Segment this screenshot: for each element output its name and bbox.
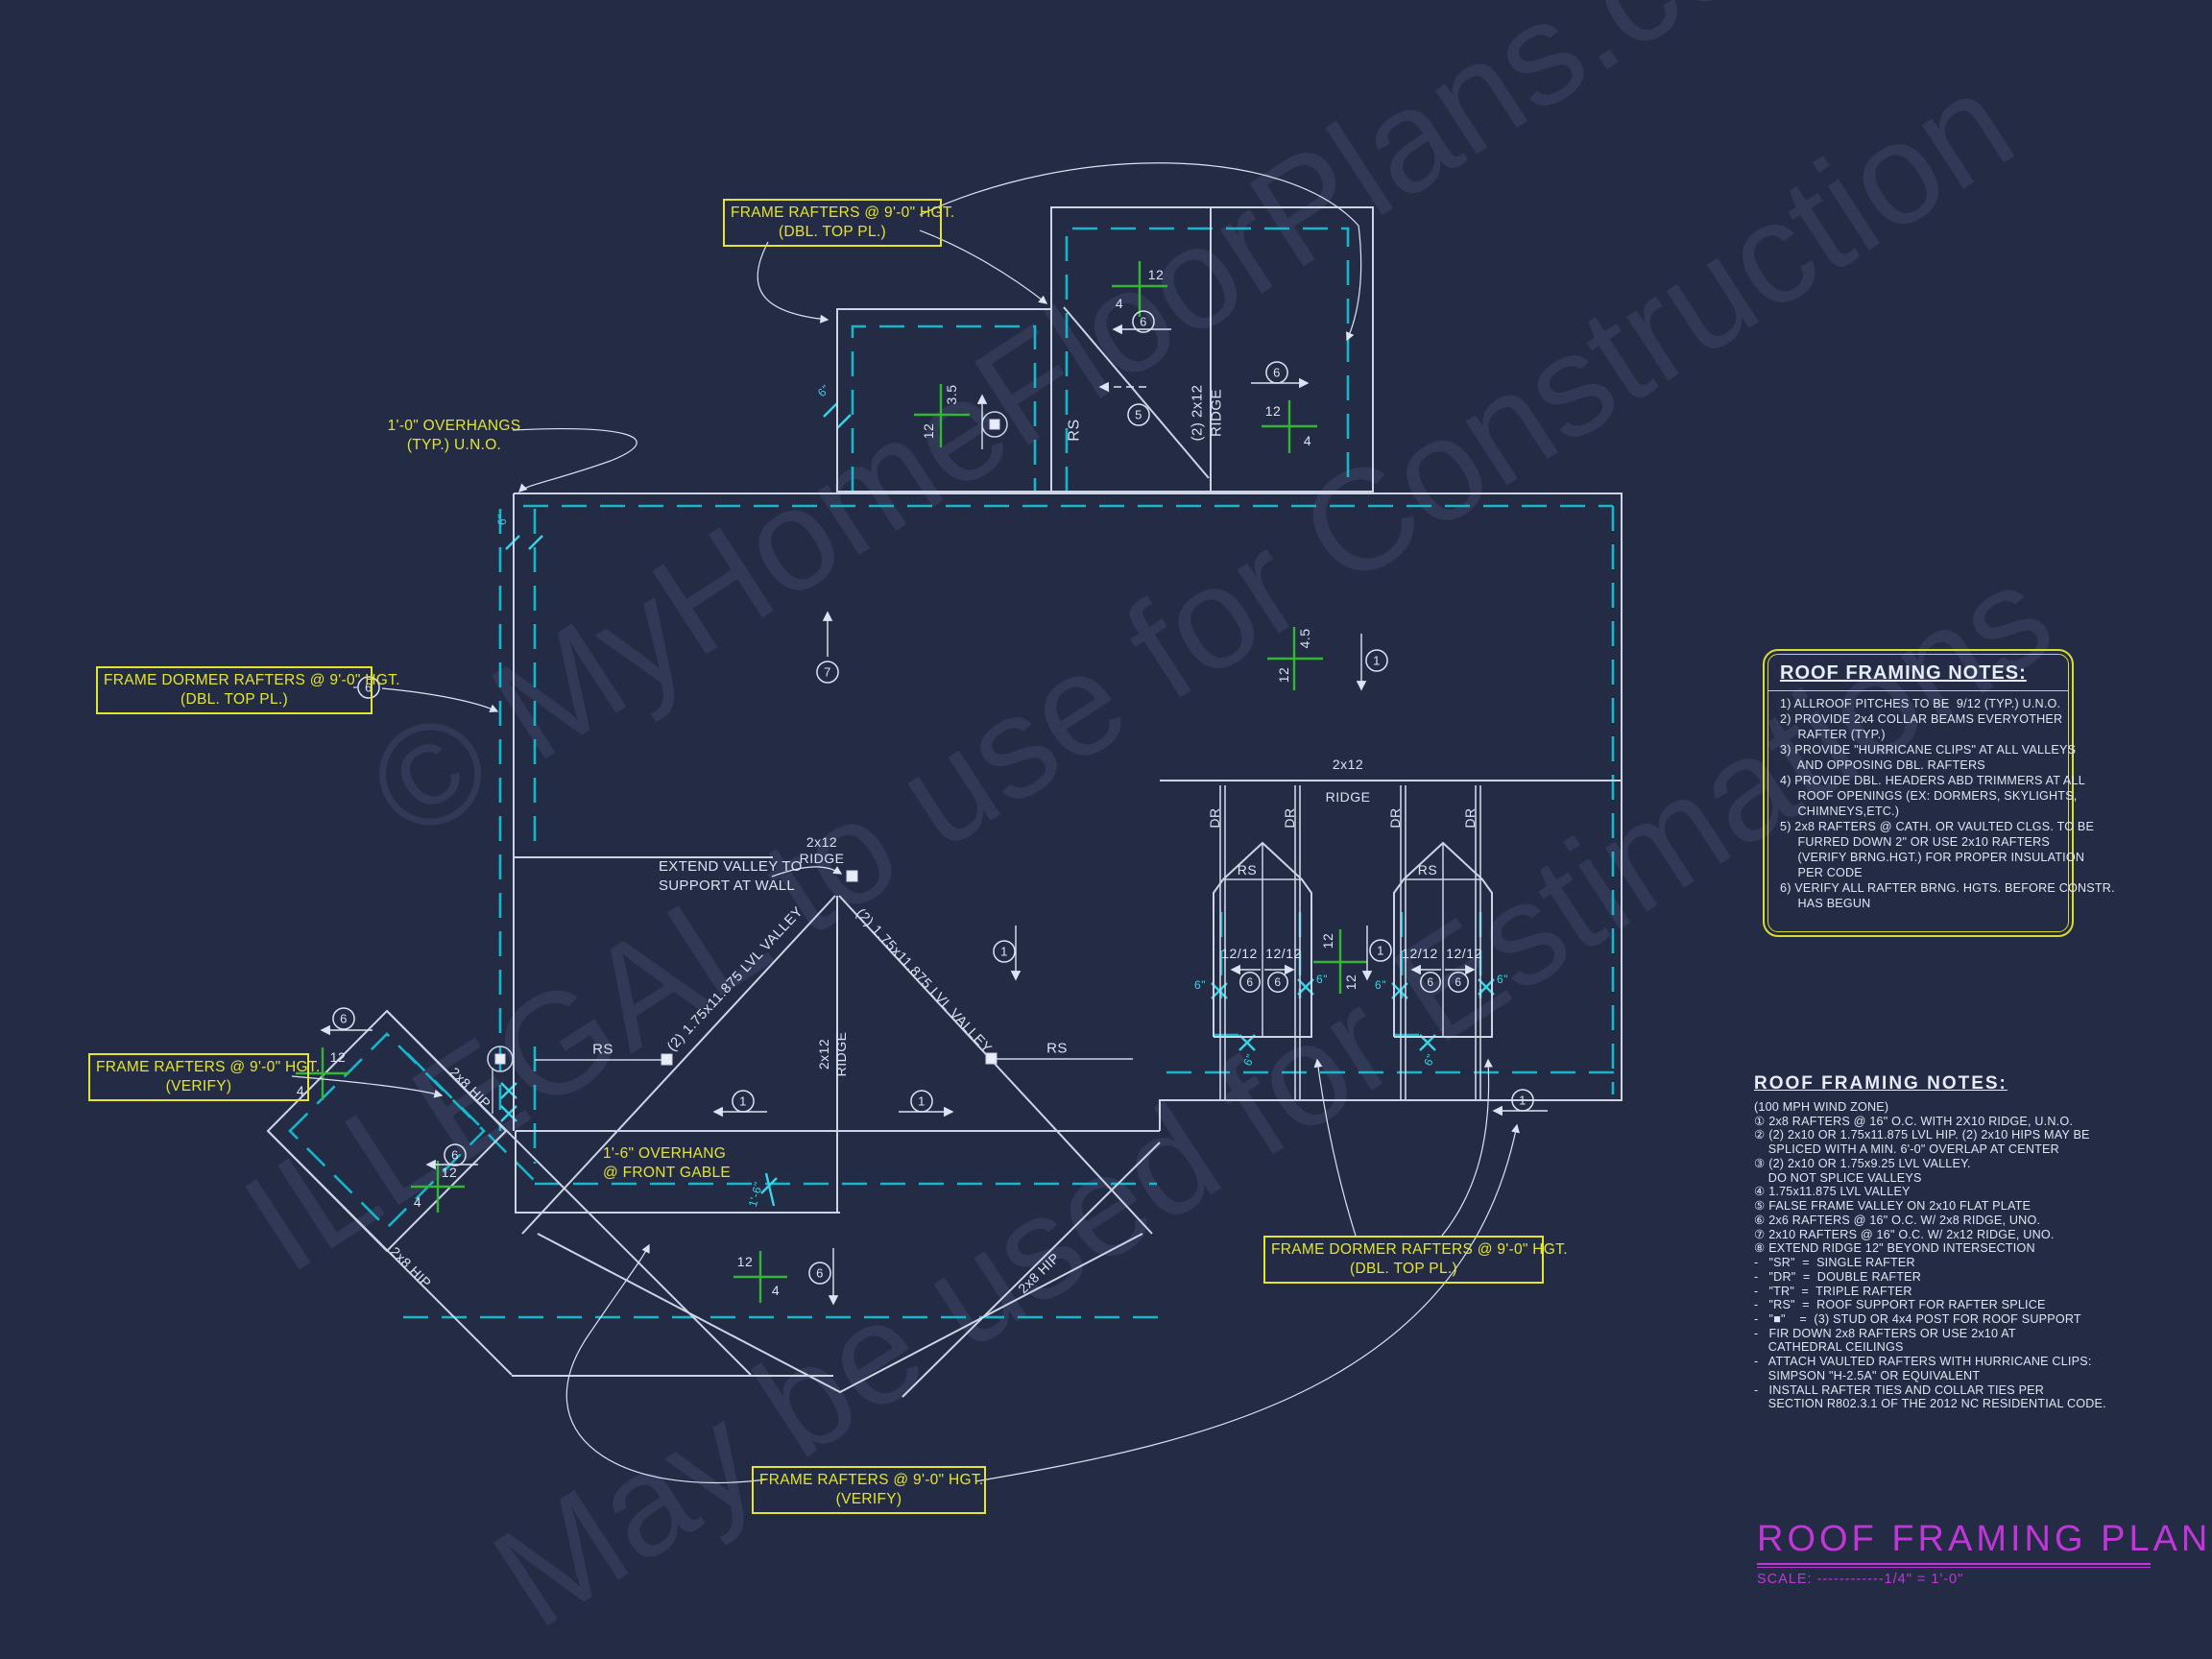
note-text: (TYP.) U.N.O. (386, 436, 522, 455)
plan-label: 1 (1373, 654, 1381, 668)
plan-label: DR (1462, 807, 1478, 828)
note-text: @ FRONT GABLE (603, 1164, 722, 1183)
plan-label: 6" (1497, 973, 1508, 986)
plan-label: (2) 1.75x11.875 LVL VALLEY (853, 906, 995, 1057)
plan-label: 12 (1276, 667, 1291, 684)
callout-text: (DBL. TOP PL.) (104, 690, 365, 709)
plan-label: RS (1418, 862, 1437, 878)
plan-label: 6" (1194, 978, 1206, 992)
scale-label: SCALE: ------------1/4" = 1'-0" (1757, 1572, 2151, 1587)
note-text: 1'-0" OVERHANGS (386, 417, 522, 436)
plan-label: 12/12 (1446, 946, 1482, 961)
notes-box-separator (1768, 690, 2068, 691)
plan-label: 12 (1265, 403, 1282, 419)
callout-text: (DBL. TOP PL.) (1271, 1260, 1536, 1279)
notes-box-title: ROOF FRAMING NOTES: (1780, 662, 2056, 685)
plan-label: RS (1238, 862, 1257, 878)
plan-label: RIDGE (1326, 789, 1371, 805)
plan-label: 6 (816, 1266, 824, 1281)
note-extend-valley: EXTEND VALLEY TO SUPPORT AT WALL (659, 857, 778, 897)
note-overhang-front-gable: 1'-6" OVERHANG @ FRONT GABLE (603, 1144, 722, 1183)
plan-label: 6 (1455, 975, 1461, 989)
plan-label: 1 (918, 1094, 926, 1109)
callout-text: FRAME RAFTERS @ 9'-0" HGT. (96, 1058, 301, 1077)
plan-label: 7 (824, 665, 831, 680)
plan-label: 4 (1116, 296, 1123, 311)
roof-support-square (986, 1053, 997, 1064)
plan-label: RS (1067, 419, 1083, 441)
callout-frame-rafters-verify-left: FRAME RAFTERS @ 9'-0" HGT. (VERIFY) (88, 1053, 309, 1101)
callout-text: FRAME RAFTERS @ 9'-0" HGT. (759, 1471, 978, 1490)
callout-frame-dormer-rafters-right: FRAME DORMER RAFTERS @ 9'-0" HGT. (DBL. … (1263, 1236, 1544, 1284)
roof-support-square (847, 871, 857, 881)
plan-label: 3.5 (944, 385, 959, 405)
plan-label: 5 (1135, 408, 1142, 422)
note-text: SUPPORT AT WALL (659, 877, 778, 896)
plan-label: RS (1046, 1041, 1068, 1057)
plan-label: 12/12 (1221, 946, 1258, 961)
plan-label: RIDGE (800, 851, 845, 866)
roof-framing-plan-sheet: © MyHomeFloorPlans.com ILLEGAL to use fo… (0, 0, 2212, 1659)
plan-label: (2) 2x12 (1190, 384, 1206, 441)
plan-label: 6 (1140, 315, 1147, 329)
callout-frame-rafters-top: FRAME RAFTERS @ 9'-0" HGT. (DBL. TOP PL.… (723, 199, 942, 247)
callout-text: FRAME RAFTERS @ 9'-0" HGT. (731, 204, 934, 223)
plan-label: 6" (1316, 973, 1328, 986)
plan-label: 12 (737, 1254, 754, 1269)
plan-label: 6 (340, 1012, 348, 1026)
plan-label: 6 (451, 1148, 459, 1163)
plan-label: 6" (815, 382, 832, 399)
plan-label: 6 (1427, 975, 1433, 989)
plan-label: 6 (1274, 975, 1281, 989)
plan-label: 12 (1148, 267, 1165, 282)
plan-label: 4.5 (1297, 629, 1312, 649)
title-block: ROOF FRAMING PLAN SCALE: ------------1/4… (1757, 1519, 2151, 1587)
plan-label: 4 (1304, 433, 1311, 448)
plan-label: 6" (1375, 978, 1386, 992)
plan-label: 12 (921, 423, 936, 440)
plan-label: 6 (1273, 366, 1281, 380)
plan-label: RIDGE (1209, 389, 1225, 437)
plan-label: DR (1387, 807, 1403, 828)
note-text: EXTEND VALLEY TO (659, 857, 778, 877)
roof-support-square (495, 1054, 505, 1064)
plan-label: 12 (1343, 974, 1358, 991)
callout-frame-rafters-verify-bottom: FRAME RAFTERS @ 9'-0" HGT. (VERIFY) (752, 1466, 986, 1514)
plan-label: DR (1207, 807, 1222, 828)
callout-frame-dormer-rafters-left: FRAME DORMER RAFTERS @ 9'-0" HGT. (DBL. … (96, 666, 373, 714)
note-overhangs-typical: 1'-0" OVERHANGS (TYP.) U.N.O. (386, 417, 522, 455)
plan-label: 12 (330, 1049, 347, 1065)
plan-label: 12 (442, 1165, 458, 1180)
plan-label: 1 (739, 1094, 747, 1109)
plan-label: 2x12 (816, 1039, 831, 1070)
title-underline (1757, 1567, 2151, 1568)
callout-text: (VERIFY) (96, 1077, 301, 1096)
callout-text: (VERIFY) (759, 1490, 978, 1509)
plan-label: 1 (1000, 945, 1008, 959)
roof-framing-notes-inner: ROOF FRAMING NOTES: 1) ALLROOF PITCHES T… (1767, 654, 2069, 932)
sheet-title: ROOF FRAMING PLAN (1757, 1519, 2151, 1565)
callout-text: FRAME DORMER RAFTERS @ 9'-0" HGT. (104, 671, 365, 690)
roof-framing-notes-box: ROOF FRAMING NOTES: 1) ALLROOF PITCHES T… (1763, 649, 2074, 937)
callout-text: FRAME DORMER RAFTERS @ 9'-0" HGT. (1271, 1240, 1536, 1260)
plan-label: 2x12 (806, 834, 837, 850)
plan-label: 12/12 (1402, 946, 1438, 961)
plan-label: 12 (1320, 933, 1335, 950)
roof-support-square (990, 420, 999, 429)
plan-label: 2x12 (1333, 757, 1363, 772)
plan-label: 4 (414, 1194, 421, 1210)
plan-label: RIDGE (833, 1032, 849, 1077)
plan-label: RS (592, 1042, 613, 1058)
notes-list-body: (100 MPH WIND ZONE) ① 2x8 RAFTERS @ 16" … (1754, 1100, 2196, 1411)
roof-framing-notes-list: ROOF FRAMING NOTES: (100 MPH WIND ZONE) … (1754, 1073, 2196, 1411)
plan-label: 12/12 (1265, 946, 1302, 961)
plan-label: 4 (772, 1283, 780, 1298)
plan-label: DR (1282, 807, 1297, 828)
roof-support-square (661, 1054, 672, 1065)
plan-label: 2x8 HIP (387, 1243, 434, 1290)
notes-list-title: ROOF FRAMING NOTES: (1754, 1073, 2196, 1094)
plan-label: 6 (1246, 975, 1253, 989)
plan-label: 1 (1377, 944, 1384, 958)
note-text: 1'-6" OVERHANG (603, 1144, 722, 1164)
plan-label: 6" (495, 514, 509, 525)
plan-label: 1 (1519, 1094, 1527, 1108)
notes-box-body: 1) ALLROOF PITCHES TO BE 9/12 (TYP.) U.N… (1780, 697, 2056, 912)
callout-text: (DBL. TOP PL.) (731, 223, 934, 242)
